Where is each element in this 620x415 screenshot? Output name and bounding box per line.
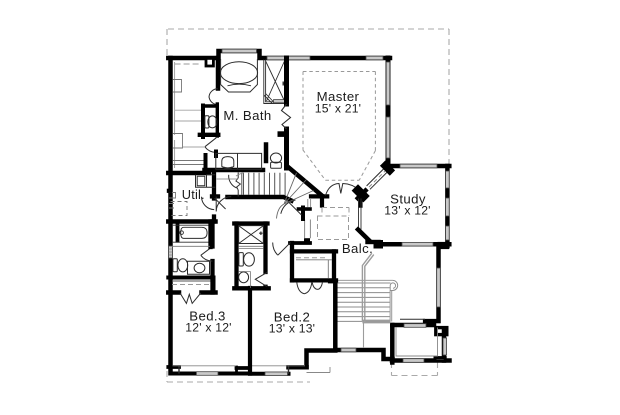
svg-text:13' x 12': 13' x 12' (384, 204, 430, 218)
svg-text:13' x 13': 13' x 13' (269, 322, 315, 336)
svg-text:15' x 21': 15' x 21' (315, 101, 361, 115)
svg-text:Util.: Util. (182, 187, 205, 202)
svg-text:M. Bath: M. Bath (223, 108, 271, 123)
svg-text:Balc.: Balc. (342, 241, 373, 256)
svg-text:12' x 12': 12' x 12' (185, 320, 231, 334)
